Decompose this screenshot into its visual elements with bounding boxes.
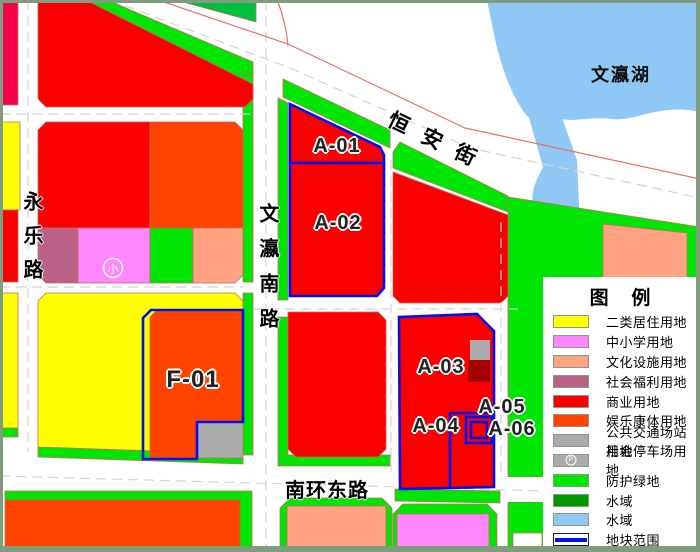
parking-swatch: P bbox=[553, 454, 589, 467]
green-strip-west2 bbox=[243, 293, 253, 455]
legend-item: 文化设施用地 bbox=[543, 352, 697, 372]
recreation-swatch bbox=[553, 414, 589, 427]
legend-item: 二类居住用地 bbox=[543, 312, 697, 332]
legend-title: 图 例 bbox=[543, 277, 697, 312]
legend-item: P 社会停车场用地 bbox=[543, 451, 697, 471]
legend-panel: 图 例 二类居住用地 中小学用地 文化设施用地 社会福利用地 商业用地 娱乐康体… bbox=[543, 277, 697, 548]
block-salmon-east bbox=[603, 224, 687, 282]
legend-item-label: 水域 bbox=[606, 510, 633, 529]
block-red-a02col-lower bbox=[288, 312, 386, 457]
legend-item-label: 地块范围 bbox=[606, 530, 660, 549]
legend-item-label: 中小学用地 bbox=[606, 332, 674, 351]
road-label-yongle: 永乐路 bbox=[17, 191, 46, 293]
legend-item: 商业用地 bbox=[543, 391, 697, 411]
residential-swatch bbox=[553, 315, 589, 328]
block-orange-bottomleft bbox=[5, 500, 240, 552]
legend-item-label: 商业用地 bbox=[606, 392, 660, 411]
block-label-a05: A-05 bbox=[470, 396, 534, 419]
school-swatch bbox=[553, 335, 589, 348]
water-dark-swatch bbox=[553, 494, 589, 507]
lake-label: 文瀛湖 bbox=[591, 61, 651, 87]
road-label-wenying: 文瀛南路 bbox=[253, 203, 282, 343]
legend-item: 地块范围 bbox=[543, 530, 697, 550]
green-swatch bbox=[553, 474, 589, 487]
culture-swatch bbox=[553, 355, 589, 368]
welfare-swatch bbox=[553, 375, 589, 388]
block-orange-row2 bbox=[150, 122, 243, 228]
block-crimson-west bbox=[0, 2, 18, 105]
block-magenta-bottom bbox=[397, 514, 489, 552]
block-label-a01: A-01 bbox=[306, 135, 368, 158]
school-symbol: 小 bbox=[108, 263, 119, 276]
lake-polygon bbox=[487, 0, 700, 120]
legend-item-label: 防护绿地 bbox=[606, 471, 660, 490]
block-culture-salmon bbox=[193, 228, 243, 283]
plot-boundary-line bbox=[555, 538, 587, 542]
commercial-swatch bbox=[553, 395, 589, 408]
water-light-swatch bbox=[553, 513, 589, 526]
lake-channel bbox=[528, 112, 577, 167]
plot-boundary-swatch bbox=[553, 533, 589, 546]
legend-item: 社会福利用地 bbox=[543, 371, 697, 391]
block-label-a06: A-06 bbox=[480, 418, 544, 441]
block-red-west bbox=[0, 210, 18, 282]
white-notch bbox=[513, 533, 542, 552]
white-road-over-green bbox=[502, 477, 548, 502]
block-f01-gray bbox=[197, 422, 243, 458]
legend-item-label: 社会福利用地 bbox=[606, 372, 687, 391]
legend-item: 水域 bbox=[543, 490, 697, 510]
parking-icon: P bbox=[566, 455, 577, 466]
street-redline-junction bbox=[278, 2, 288, 46]
block-label-a04: A-04 bbox=[404, 415, 468, 438]
block-green-row3 bbox=[150, 228, 193, 283]
block-label-f01: F-01 bbox=[155, 366, 231, 394]
legend-item-label: 文化设施用地 bbox=[606, 352, 687, 371]
block-label-a03: A-03 bbox=[409, 356, 473, 379]
legend-item: 中小学用地 bbox=[543, 332, 697, 352]
block-salmon-bottom bbox=[287, 506, 386, 552]
road-label-nanhuan: 南环东路 bbox=[285, 474, 369, 503]
legend-item-label: 二类居住用地 bbox=[606, 312, 687, 331]
block-label-a02: A-02 bbox=[306, 212, 370, 235]
legend-item-label: 水域 bbox=[606, 491, 633, 510]
legend-item: 水域 bbox=[543, 510, 697, 530]
block-yellow-west2 bbox=[0, 293, 18, 428]
block-red-row2 bbox=[38, 122, 150, 228]
green-strip-farleft bbox=[0, 428, 18, 437]
a03-gray-square bbox=[470, 340, 490, 360]
transit-swatch bbox=[553, 434, 589, 447]
green-band-a03 bbox=[395, 489, 500, 503]
zoning-map-canvas: 小 永乐路 文瀛南路 恒安街 南环东路 文瀛湖 A-01 A-02 A-03 A… bbox=[0, 0, 700, 552]
